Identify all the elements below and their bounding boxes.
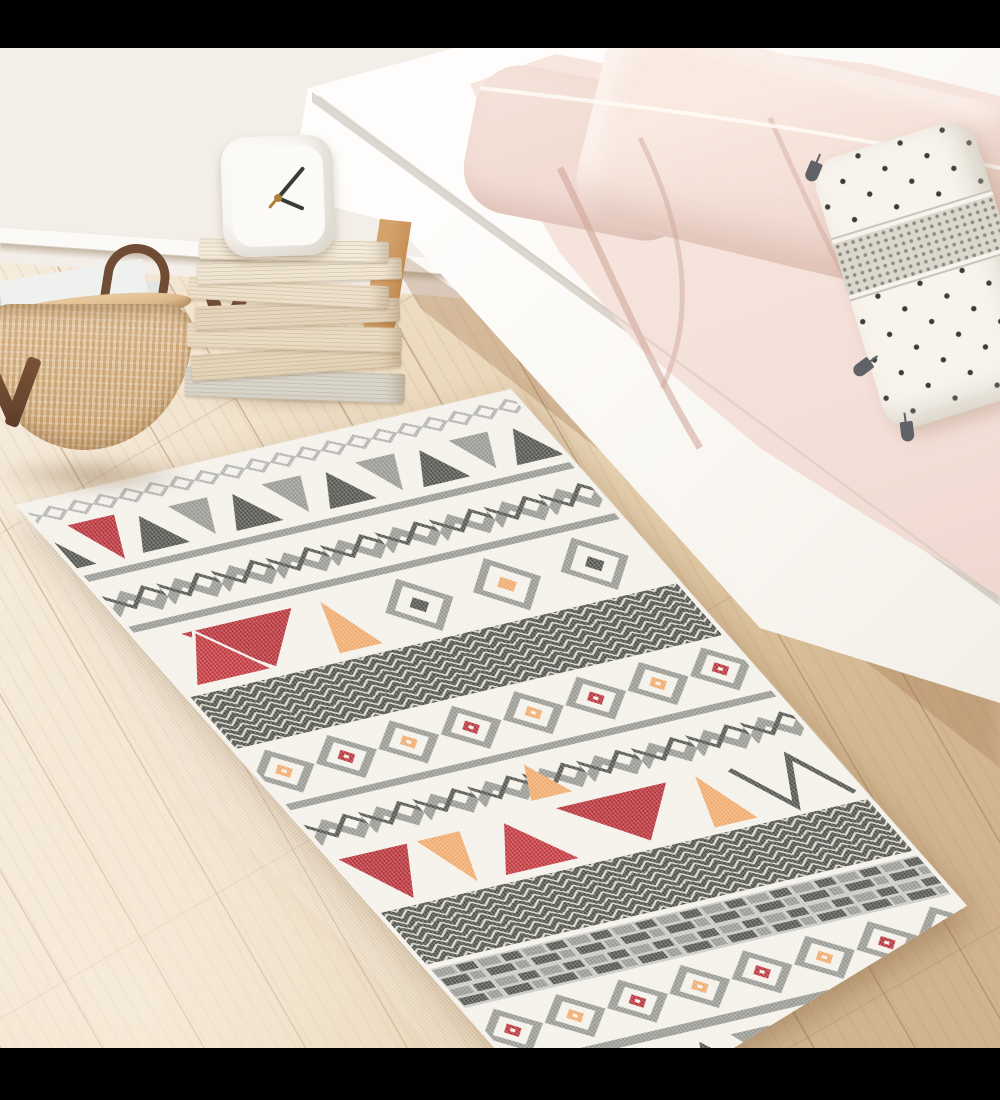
letterbox-bottom [0, 1048, 1000, 1100]
rug-surface [0, 48, 1000, 1048]
table-clock [220, 134, 336, 258]
rug [0, 48, 1000, 1048]
basket [0, 244, 198, 494]
bedroom-photo [0, 48, 1000, 1048]
letterbox-top [0, 0, 1000, 48]
basket-shadow [0, 458, 195, 492]
